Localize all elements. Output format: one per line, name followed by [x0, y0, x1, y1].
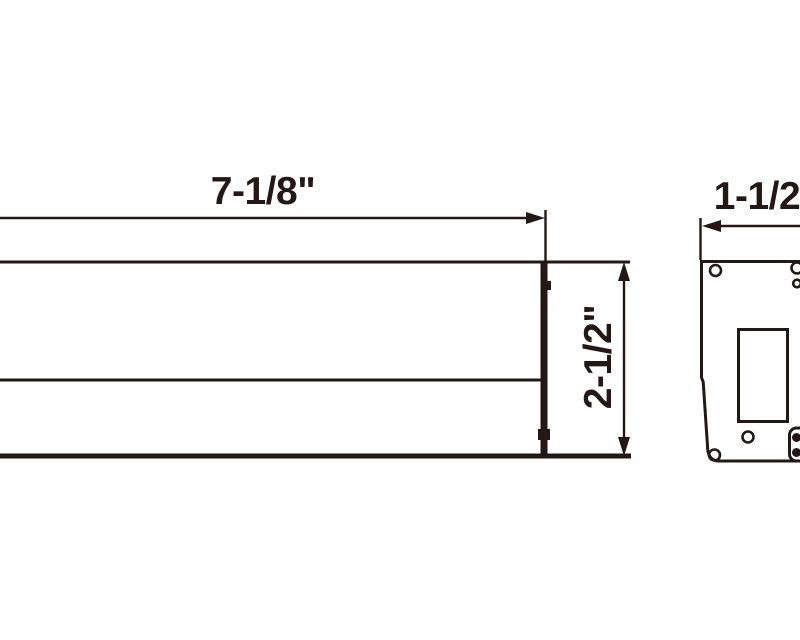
front-endcap-lower-tab [538, 429, 550, 440]
side-view: 1-1/2" [701, 175, 800, 461]
front-height-dimension-label: 2-1/2" [577, 305, 620, 409]
side-depth-arrowhead-left [702, 220, 721, 232]
side-rectangular-cutout [739, 330, 788, 422]
connector-terminal-bottom [792, 448, 800, 457]
front-view: 7-1/8" 2-1/2" [0, 170, 631, 456]
side-depth-dimension-label: 1-1/2" [714, 175, 800, 218]
front-height-arrowhead-bottom [618, 437, 630, 456]
pilot-hole-top-right [793, 280, 800, 288]
front-width-dimension-label: 7-1/8" [211, 170, 315, 213]
drawing-page: 7-1/8" 2-1/2" 1-1/2" [0, 0, 800, 640]
front-height-arrowhead-top [618, 262, 630, 281]
screw-hole-top-right [792, 263, 800, 274]
front-width-arrowhead-right [526, 212, 545, 224]
front-endcap-upper-tab [546, 281, 551, 290]
screw-hole-top-left [710, 265, 721, 276]
front-body-right-endcap [541, 262, 548, 456]
technical-drawing-canvas: 7-1/8" 2-1/2" 1-1/2" [0, 0, 800, 640]
connector-terminal-top [792, 433, 800, 442]
screw-hole-center-bottom [743, 432, 754, 443]
